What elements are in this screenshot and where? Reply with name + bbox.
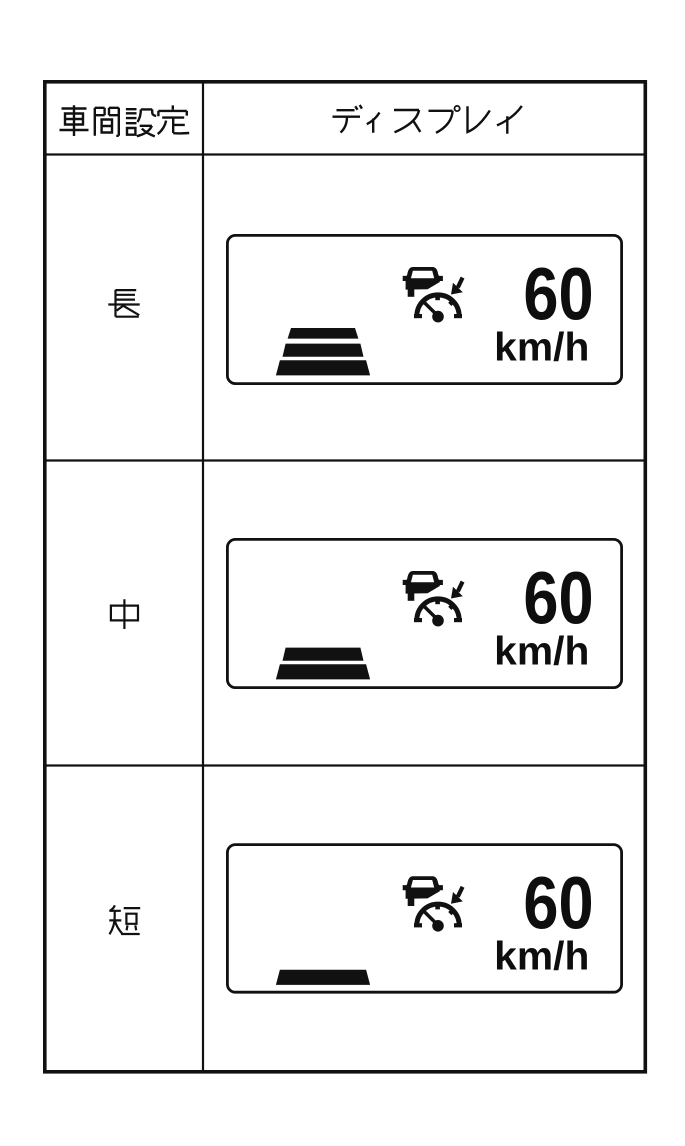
svg-text:60: 60 [523, 557, 593, 640]
svg-text:km/h: km/h [494, 935, 589, 979]
svg-text:60: 60 [523, 253, 593, 336]
svg-text:km/h: km/h [494, 325, 589, 369]
svg-text:km/h: km/h [494, 629, 589, 673]
svg-text:60: 60 [523, 862, 593, 945]
